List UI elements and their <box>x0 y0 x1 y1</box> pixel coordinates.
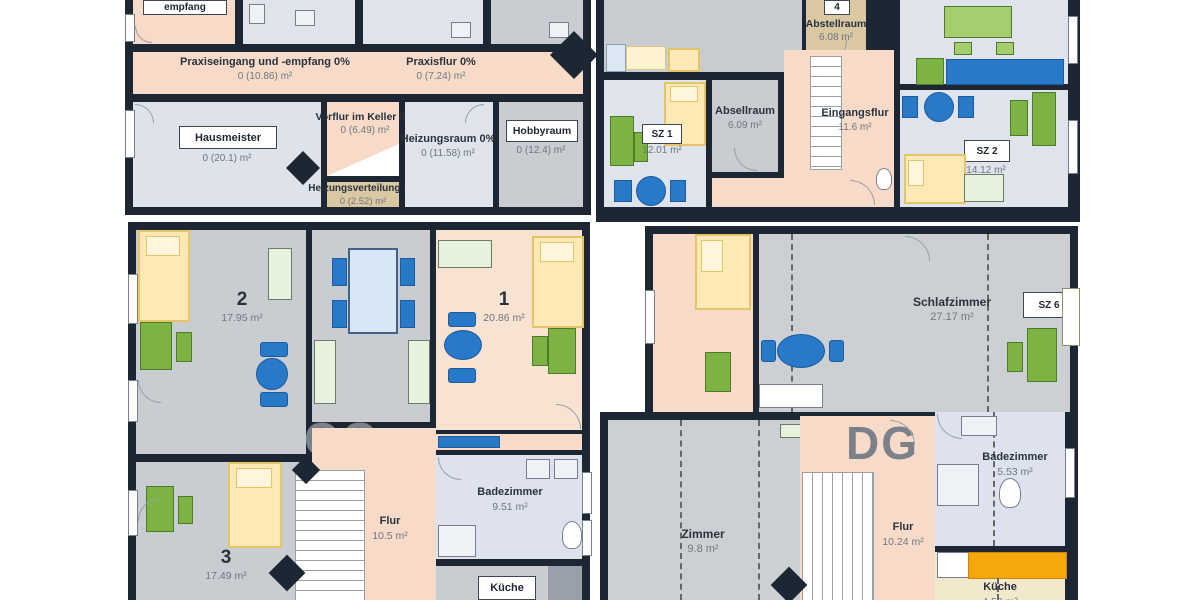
table <box>944 6 1012 38</box>
window <box>1068 120 1078 174</box>
roof-slope-line <box>680 420 682 600</box>
washbasin <box>554 459 578 479</box>
window <box>128 490 138 536</box>
pillow <box>236 468 272 488</box>
desk <box>548 328 576 374</box>
room-og-corridor-strip[interactable] <box>436 434 582 450</box>
chair <box>614 180 632 202</box>
room-name: 2 <box>202 290 282 311</box>
room-kg-heizungsverteilung[interactable]: Heizungsverteilung 0% 0 (2.52) m² <box>327 182 399 207</box>
room-area: 10.24 m² <box>872 535 934 549</box>
wardrobe <box>1032 92 1056 146</box>
room-area: 0 (10.86) m² <box>155 70 375 84</box>
desk <box>140 322 172 370</box>
room-kg-wc2[interactable] <box>363 0 483 44</box>
room-name: Flur <box>872 520 934 535</box>
window <box>1065 448 1075 498</box>
window <box>128 274 138 324</box>
chair <box>400 300 415 328</box>
room-name: Praxiseingang und -empfang 0% <box>155 55 375 70</box>
wc-fixture <box>295 10 315 26</box>
room-eg-eingangsflur[interactable]: Eingangsflur 11.6 m² <box>784 50 894 207</box>
chair <box>954 42 972 55</box>
room-area: 0 (20.1) m² <box>179 152 275 166</box>
room-label-sz1: 12.01 m² <box>634 144 690 158</box>
room-dg-landing[interactable] <box>653 234 753 416</box>
window <box>128 380 138 422</box>
room-kg-corridor[interactable]: Praxiseingang und -empfang 0% 0 (10.86) … <box>133 52 583 94</box>
room-dg-schlafzimmer[interactable]: Schlafzimmer 27.17 m² SZ 6 <box>759 234 1070 412</box>
staircase <box>802 472 874 600</box>
door-arc <box>135 26 152 43</box>
room-tag-hausmeister[interactable]: Hausmeister <box>179 126 277 149</box>
door-arc <box>138 498 161 521</box>
room-area: 10.5 m² <box>360 529 420 543</box>
room-og-badezimmer[interactable]: Badezimmer 9.51 m² <box>436 455 582 559</box>
wc-fixture <box>249 4 265 24</box>
room-dg-flur[interactable]: DG Flur 10.24 m² <box>800 416 935 600</box>
window-sill <box>606 44 626 72</box>
room-name: Eingangsflur <box>812 106 898 121</box>
wardrobe <box>610 116 634 166</box>
window <box>125 110 135 158</box>
door-arc <box>438 457 461 480</box>
chair <box>332 300 347 328</box>
room-area: 20.86 m² <box>464 311 544 325</box>
room-name: Schlafzimmer <box>885 294 1019 310</box>
floorplan-canvas: KG empfang Praxiseingang und -empfang 0%… <box>0 0 1200 600</box>
room-eg-top-left[interactable] <box>604 0 802 72</box>
room-kg-wc1[interactable] <box>243 0 355 44</box>
room-label-hausmeister: 0 (20.1) m² <box>179 152 275 166</box>
room-area: 12.01 m² <box>634 144 690 158</box>
chair <box>448 368 476 383</box>
door-arc <box>905 236 930 261</box>
table-round <box>636 176 666 206</box>
room-name: Abstellraum <box>784 17 888 31</box>
sink <box>937 552 969 578</box>
room-label-praxiseingang: Praxiseingang und -empfang 0% 0 (10.86) … <box>155 55 375 83</box>
room-og-1[interactable]: 1 20.86 m² <box>436 230 582 430</box>
bed <box>695 234 751 310</box>
room-label-3: 3 17.49 m² <box>186 548 266 583</box>
shelf-blue <box>438 436 500 448</box>
bed <box>138 230 190 322</box>
room-area: 0 (12.4) m² <box>506 144 576 158</box>
room-label-flur: Flur 10.5 m² <box>360 514 420 543</box>
room-og-kueche[interactable]: Küche <box>436 566 582 600</box>
room-kg-empfang[interactable]: empfang <box>133 0 235 44</box>
room-label-2: 2 17.95 m² <box>202 290 282 325</box>
window <box>645 290 655 344</box>
room-label-zimmer: Zimmer 9.8 m² <box>648 526 758 557</box>
pillow <box>670 86 698 102</box>
window <box>125 14 135 42</box>
floor-og: OG 2 17.95 m² <box>128 222 590 600</box>
floor-eg: EG 4 Abstellraum 6.08 m² <box>596 0 1080 222</box>
room-eg-sz2[interactable]: SZ 2 14.12 m² <box>900 90 1068 207</box>
room-area: 5.53 m² <box>965 465 1065 479</box>
bed <box>228 462 282 548</box>
kitchen-counter <box>968 552 1067 579</box>
chair <box>670 180 686 202</box>
room-label-eingangsflur: Eingangsflur 11.6 m² <box>812 106 898 134</box>
room-tag-sz1[interactable]: SZ 1 <box>642 124 682 144</box>
floor-dg-lower: Zimmer 9.8 m² DG Flur 10.24 m² Badezimme… <box>600 412 1078 600</box>
room-name: Badezimmer <box>965 450 1065 465</box>
room-eg-top-right[interactable] <box>900 0 1068 84</box>
room-label-flur: Flur 10.24 m² <box>872 520 934 549</box>
chair <box>260 342 288 357</box>
room-name: Badezimmer <box>460 485 560 500</box>
room-tag-kueche[interactable]: Küche <box>478 576 536 600</box>
room-eg-absellraum[interactable]: Absellraum 6.09 m² <box>712 80 778 172</box>
toilet <box>999 478 1021 508</box>
room-label-praxisflur: Praxisflur 0% 0 (7.24) m² <box>371 55 511 83</box>
room-kg-hobbyraum[interactable]: Hobbyraum 0 (12.4) m² <box>499 102 583 207</box>
room-label-badezimmer-dg: Badezimmer 5.53 m² <box>965 450 1065 479</box>
room-tag-empfang[interactable]: empfang <box>143 0 227 15</box>
washbasin <box>526 459 550 479</box>
table-round <box>444 330 482 360</box>
chair <box>332 258 347 286</box>
room-dg-zimmer[interactable]: Zimmer 9.8 m² <box>608 420 800 600</box>
shelf <box>408 340 430 404</box>
window <box>1068 16 1078 64</box>
door-arc <box>138 380 161 403</box>
room-name: Küche <box>965 580 1035 595</box>
room-area: 4.52 m² <box>965 595 1035 600</box>
room-area: 11.6 m² <box>812 121 898 135</box>
room-tag-hobbyraum[interactable]: Hobbyraum <box>506 120 578 142</box>
chair <box>996 42 1014 55</box>
armchair <box>916 58 944 85</box>
room-label-kueche-dg: Küche 4.52 m² <box>965 580 1035 600</box>
room-area: 9.51 m² <box>460 500 560 514</box>
table <box>348 248 398 334</box>
floor-dg-upper: Schlafzimmer 27.17 m² SZ 6 <box>645 226 1078 416</box>
shelf <box>438 240 492 268</box>
room-tag-4[interactable]: 4 <box>824 0 850 15</box>
table-oval <box>777 334 825 368</box>
room-label-hobbyraum: 0 (12.4) m² <box>506 144 576 158</box>
door-arc <box>465 104 484 123</box>
room-label-1: 1 20.86 m² <box>464 290 544 325</box>
floor-kg: KG empfang Praxiseingang und -empfang 0%… <box>125 0 591 215</box>
staircase <box>295 470 365 600</box>
chair <box>958 96 974 118</box>
pillow <box>540 242 574 262</box>
sideboard <box>759 384 823 408</box>
room-eg-sz1[interactable]: SZ 1 12.01 m² <box>604 80 706 207</box>
room-area: 0 (7.24) m² <box>371 70 511 84</box>
wardrobe <box>1027 328 1057 382</box>
wardrobe <box>1010 100 1028 136</box>
table-round <box>256 358 288 390</box>
room-area: 17.49 m² <box>186 569 266 583</box>
room-name: 1 <box>464 290 544 311</box>
room-dg-kueche[interactable]: Küche 4.52 m² <box>935 552 1065 600</box>
bed <box>904 154 966 204</box>
chair <box>532 336 548 366</box>
chair <box>448 312 476 327</box>
room-name: Flur <box>360 514 420 529</box>
room-dg-badezimmer[interactable]: Badezimmer 5.53 m² <box>935 412 1065 546</box>
room-tag-sz2[interactable]: SZ 2 <box>964 140 1010 162</box>
room-label-badezimmer: Badezimmer 9.51 m² <box>460 485 560 514</box>
bench <box>626 46 666 70</box>
washbasin <box>961 416 997 436</box>
room-name: 3 <box>186 548 266 569</box>
pillow <box>908 160 924 186</box>
chair <box>260 392 288 407</box>
chair <box>178 496 193 524</box>
room-name: Zimmer <box>648 526 758 542</box>
bench <box>964 174 1004 202</box>
toilet <box>562 521 582 549</box>
chair <box>829 340 844 362</box>
door-arc <box>734 148 757 171</box>
room-kg-heizungsraum[interactable]: Heizungsraum 0% 0 (11.58) m² <box>405 102 493 207</box>
door-arc <box>556 404 581 429</box>
bed <box>668 48 700 72</box>
window <box>582 520 592 556</box>
room-area: 9.8 m² <box>648 542 758 557</box>
room-label-schlafzimmer: Schlafzimmer 27.17 m² <box>885 294 1019 325</box>
door-arc <box>135 104 154 123</box>
chair <box>761 340 776 362</box>
door-arc <box>937 414 962 439</box>
shower <box>937 464 979 506</box>
wc-fixture <box>549 22 569 38</box>
wardrobe <box>1007 342 1023 372</box>
room-area: 27.17 m² <box>885 310 1019 325</box>
shelf <box>314 340 336 404</box>
room-og-middle[interactable] <box>312 230 430 422</box>
chair <box>400 258 415 286</box>
wardrobe <box>705 352 731 392</box>
pillow <box>146 236 180 256</box>
wc-fixture <box>451 22 471 38</box>
toilet <box>876 168 892 190</box>
room-og-2[interactable]: 2 17.95 m² <box>136 230 306 454</box>
chair <box>902 96 918 118</box>
sofa <box>946 59 1064 85</box>
window <box>582 472 592 514</box>
room-name: Praxisflur 0% <box>371 55 511 70</box>
roof-slope-line <box>758 420 760 600</box>
chair <box>176 332 192 362</box>
room-eg-corridor-ext[interactable] <box>712 178 784 207</box>
pillow <box>701 240 723 272</box>
kitchen-counter <box>548 566 582 600</box>
room-area: 17.95 m² <box>202 311 282 325</box>
shower <box>438 525 476 557</box>
door-arc <box>850 180 875 205</box>
window-dormer <box>1062 288 1080 346</box>
table-round <box>924 92 954 122</box>
